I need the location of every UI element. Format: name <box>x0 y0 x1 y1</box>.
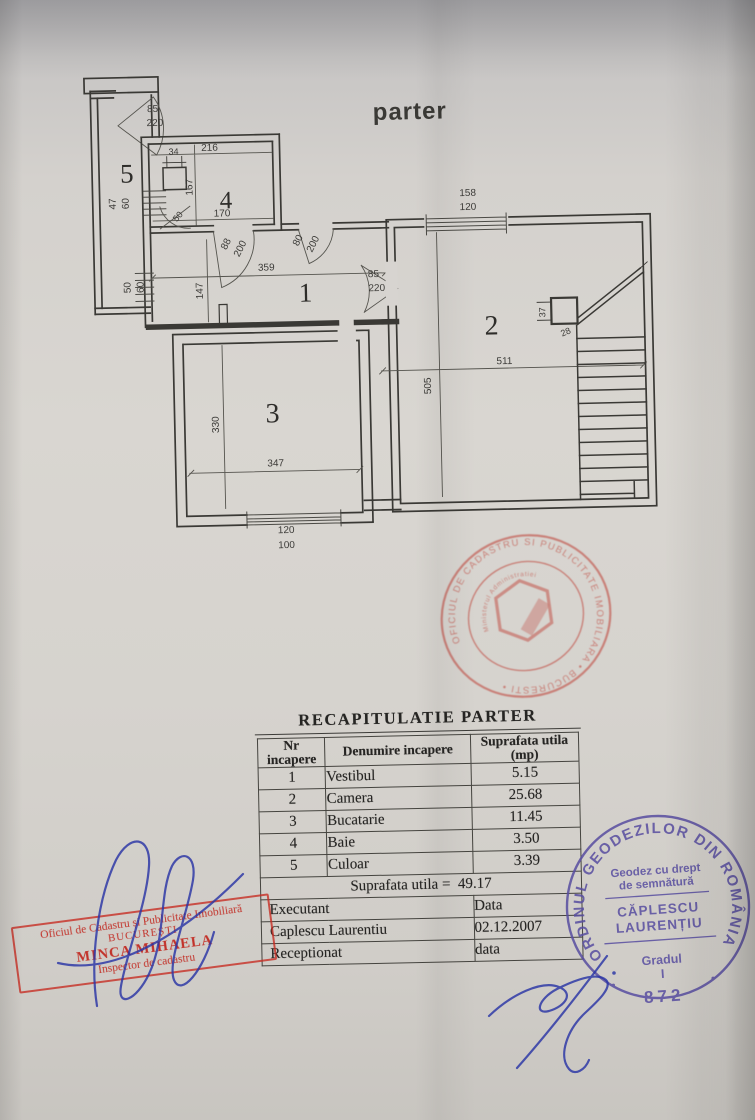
col-header-nr: Nr incapere <box>257 737 325 768</box>
svg-text:170: 170 <box>214 208 231 219</box>
svg-text:85: 85 <box>368 269 380 280</box>
table-cell: Camera <box>326 786 472 811</box>
total-label: Suprafata utila = <box>350 876 450 894</box>
room3-walls <box>173 330 401 527</box>
room3-number: 3 <box>265 398 280 429</box>
room1-number: 1 <box>298 277 312 307</box>
svg-text:60: 60 <box>136 281 147 293</box>
geodez-round-stamp: ORDINUL GEODEZILOR DIN ROMÂNIA Geodez cu… <box>556 792 755 1024</box>
svg-text:60: 60 <box>121 198 132 210</box>
floor-plan: parter <box>0 0 755 560</box>
floor-title: parter <box>372 97 447 126</box>
table-cell: Baie <box>327 830 473 855</box>
recap-table-block: RECAPITULATIE PARTER Nr incapere Denumir… <box>252 705 587 967</box>
col-header-name: Denumire incapere <box>325 734 471 766</box>
svg-text:88: 88 <box>219 236 234 251</box>
table-cell: 4 <box>259 833 327 856</box>
total-value: 49.17 <box>458 875 492 892</box>
room4-walls <box>141 132 390 328</box>
svg-text:872: 872 <box>643 985 685 1007</box>
svg-text:120: 120 <box>459 202 476 213</box>
room5-number: 5 <box>120 158 134 188</box>
table-cell: 5.15 <box>471 761 580 785</box>
svg-text:100: 100 <box>278 540 295 551</box>
svg-text:28: 28 <box>559 325 572 338</box>
room2-number: 2 <box>484 310 499 341</box>
svg-text:147: 147 <box>195 282 206 299</box>
svg-text:505: 505 <box>423 377 434 394</box>
svg-text:511: 511 <box>496 356 513 367</box>
svg-text:34: 34 <box>168 146 178 156</box>
svg-text:120: 120 <box>278 525 295 536</box>
scanned-document-page: parter <box>0 0 755 1120</box>
svg-text:330: 330 <box>211 416 222 433</box>
stamp-ring-text: OFICIUL DE CADASTRU SI PUBLICITATE IMOBI… <box>428 528 624 710</box>
recap-table: Nr incapere Denumire incapere Suprafata … <box>257 732 584 967</box>
table-cell: Vestibul <box>326 764 472 789</box>
svg-text:I: I <box>660 967 664 981</box>
svg-text:359: 359 <box>258 262 275 273</box>
door-gap <box>385 262 398 306</box>
table-cell: 2 <box>259 789 327 812</box>
col-header-area: Suprafata utila (mp) <box>470 732 579 764</box>
svg-text:167: 167 <box>184 178 195 195</box>
svg-text:47: 47 <box>108 198 119 210</box>
cadastru-rect-stamp: Oficiul de Cadastru și Publicitate Imobi… <box>11 893 278 993</box>
recap-title: RECAPITULATIE PARTER <box>254 705 580 736</box>
svg-text:220: 220 <box>146 118 163 129</box>
svg-text:220: 220 <box>368 283 385 294</box>
hall-walls <box>148 301 396 328</box>
svg-text:216: 216 <box>201 143 218 154</box>
room2-dimension-lines <box>377 228 650 498</box>
staircase <box>536 262 652 500</box>
table-cell: 1 <box>258 767 326 790</box>
svg-text:200: 200 <box>305 234 323 254</box>
table-cell: Bucatarie <box>326 808 472 833</box>
svg-text:158: 158 <box>459 188 476 199</box>
cadastru-round-stamp: OFICIUL DE CADASTRU SI PUBLICITATE IMOBI… <box>428 528 624 710</box>
receptionat-label: Receptionat <box>262 940 475 966</box>
table-cell: Culoar <box>327 852 473 877</box>
hall-dimension-lines <box>149 236 390 323</box>
svg-text:85: 85 <box>147 104 159 115</box>
svg-text:Gradul: Gradul <box>641 951 682 968</box>
room4-window-hatch <box>143 191 166 215</box>
svg-text:37: 37 <box>537 307 547 317</box>
svg-text:347: 347 <box>267 458 284 469</box>
svg-text:50: 50 <box>123 282 134 294</box>
table-cell: 5 <box>260 855 328 878</box>
stamp-center-text: Geodez cu drept de semnătură CĂPLESCU LA… <box>610 862 710 1009</box>
svg-text:200: 200 <box>232 239 250 259</box>
room4-fixture <box>163 156 187 190</box>
table-cell: 3 <box>259 811 327 834</box>
